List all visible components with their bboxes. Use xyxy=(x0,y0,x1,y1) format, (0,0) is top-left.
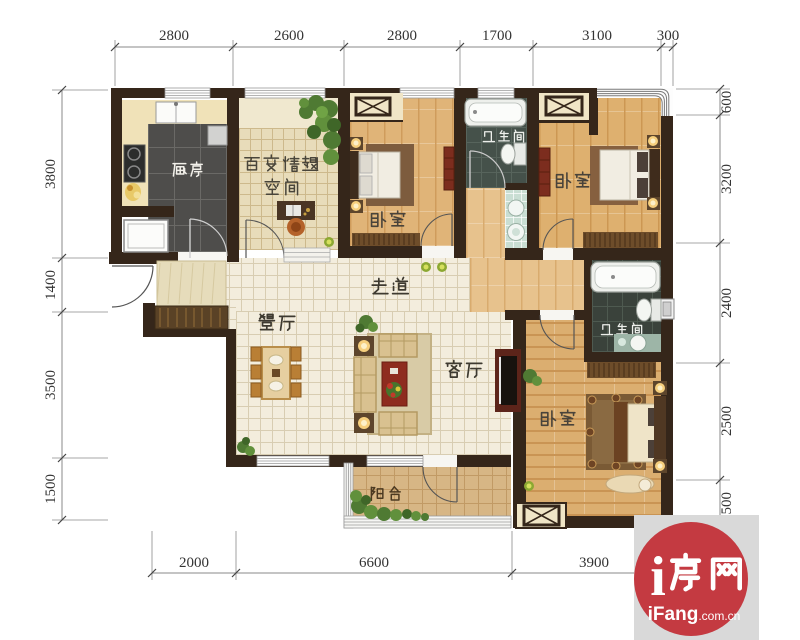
svg-text:2800: 2800 xyxy=(159,28,189,44)
svg-text:3500: 3500 xyxy=(43,370,59,400)
svg-text:2600: 2600 xyxy=(274,28,304,44)
svg-text:1500: 1500 xyxy=(43,474,59,504)
svg-text:3200: 3200 xyxy=(719,164,735,194)
svg-text:i: i xyxy=(650,546,666,608)
svg-text:6600: 6600 xyxy=(359,555,389,571)
svg-text:1700: 1700 xyxy=(482,28,512,44)
svg-text:2400: 2400 xyxy=(719,288,735,318)
svg-text:600: 600 xyxy=(719,91,735,114)
svg-text:1400: 1400 xyxy=(43,270,59,300)
svg-text:3900: 3900 xyxy=(579,555,609,571)
svg-text:2500: 2500 xyxy=(719,406,735,436)
svg-text:2800: 2800 xyxy=(387,28,417,44)
svg-text:2000: 2000 xyxy=(179,555,209,571)
svg-text:3800: 3800 xyxy=(43,159,59,189)
svg-text:300: 300 xyxy=(657,28,680,44)
svg-text:3100: 3100 xyxy=(582,28,612,44)
